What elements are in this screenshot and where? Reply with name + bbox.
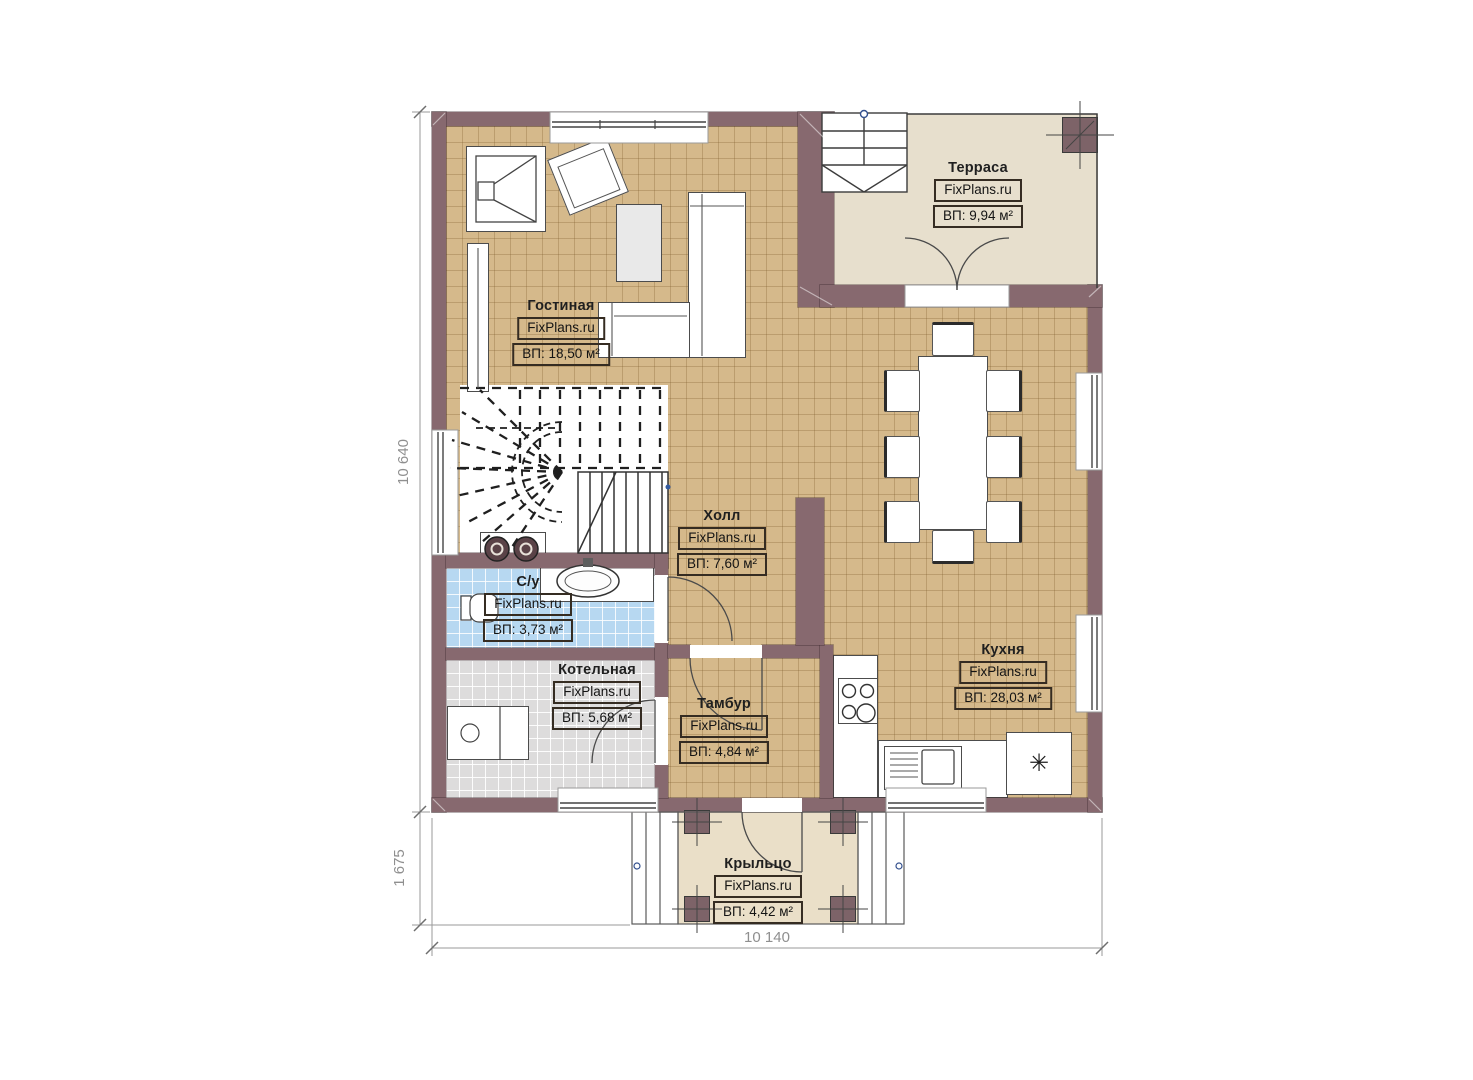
- wall-exterior-bottom: [432, 798, 1102, 812]
- porch-column: [684, 810, 710, 834]
- room-name: Котельная: [558, 662, 636, 678]
- room-label-vestibule: Тамбур FixPlans.ru ВП: 4,84 м²: [679, 696, 769, 764]
- watermark: FixPlans.ru: [680, 715, 768, 738]
- room-area: ВП: 9,94 м²: [933, 205, 1023, 228]
- room-area: ВП: 3,73 м²: [483, 619, 573, 642]
- kitchen-stove: [838, 678, 878, 724]
- dining-chair: [932, 530, 974, 564]
- room-name: Кухня: [981, 642, 1024, 658]
- fridge: ✳: [1006, 732, 1072, 795]
- dining-chair: [884, 501, 920, 543]
- watermark: FixPlans.ru: [553, 681, 641, 704]
- room-label-kitchen: Кухня FixPlans.ru ВП: 28,03 м²: [954, 642, 1052, 710]
- dining-table: [918, 356, 988, 530]
- kitchen-counter-left: [833, 655, 878, 798]
- wall-exterior-top: [432, 112, 834, 126]
- watermark: FixPlans.ru: [714, 875, 802, 898]
- watermark: FixPlans.ru: [517, 317, 605, 340]
- terrace-column: [1062, 117, 1098, 153]
- dining-chair: [986, 501, 1022, 543]
- dimension-left-porch: 1 675: [391, 849, 408, 887]
- watermark: FixPlans.ru: [484, 593, 572, 616]
- room-area: ВП: 5,68 м²: [552, 707, 642, 730]
- room-label-porch: Крыльцо FixPlans.ru ВП: 4,42 м²: [713, 856, 803, 924]
- sofa-vertical: [688, 192, 746, 358]
- boiler-unit: [447, 706, 529, 760]
- wall-hall-left-2: [655, 643, 668, 697]
- room-area: ВП: 4,84 м²: [679, 741, 769, 764]
- dimension-bottom-total: 10 140: [744, 929, 790, 946]
- dining-chair: [986, 370, 1022, 412]
- floor-plan-canvas: ✳: [0, 0, 1473, 1080]
- wall-bathroom-boiler: [446, 648, 658, 660]
- wall-exterior-left: [432, 112, 446, 812]
- room-name: Крыльцо: [724, 856, 791, 872]
- wall-hall-left-3: [655, 765, 668, 798]
- watermark: FixPlans.ru: [959, 661, 1047, 684]
- room-name: Гостиная: [527, 298, 594, 314]
- dining-chair: [884, 436, 920, 478]
- room-label-bathroom: С/у FixPlans.ru ВП: 3,73 м²: [483, 574, 573, 642]
- dining-chair: [884, 370, 920, 412]
- room-area: ВП: 4,42 м²: [713, 901, 803, 924]
- dining-chair: [986, 436, 1022, 478]
- room-name: Терраса: [948, 160, 1008, 176]
- porch-column: [684, 896, 710, 922]
- dimension-left-total: 10 640: [395, 439, 412, 485]
- room-area: ВП: 18,50 м²: [512, 343, 610, 366]
- coffee-table: [616, 204, 662, 282]
- kitchen-sink-unit: [884, 746, 962, 790]
- wall-vestibule-top-1: [668, 645, 690, 658]
- fireplace: [466, 146, 546, 232]
- porch-column: [830, 896, 856, 922]
- stairs-area: [460, 385, 668, 553]
- wall-hall-left-1: [655, 553, 668, 575]
- sofa-chaise: [598, 302, 690, 358]
- wall-terrace-left: [798, 112, 834, 307]
- room-name: Холл: [703, 508, 740, 524]
- fridge-icon: ✳: [1029, 749, 1049, 778]
- porch-column: [830, 810, 856, 834]
- room-label-boiler: Котельная FixPlans.ru ВП: 5,68 м²: [552, 662, 642, 730]
- watermark: FixPlans.ru: [678, 527, 766, 550]
- wall-stairs-bathroom: [446, 553, 668, 568]
- wall-exterior-right: [1088, 285, 1102, 812]
- room-label-terrace: Терраса FixPlans.ru ВП: 9,94 м²: [933, 160, 1023, 228]
- tv-console: [467, 243, 489, 392]
- room-label-hall: Холл FixPlans.ru ВП: 7,60 м²: [677, 508, 767, 576]
- room-name: Тамбур: [697, 696, 751, 712]
- wall-hall-kitchen-stub: [796, 498, 824, 645]
- wall-vestibule-top-2: [762, 645, 820, 658]
- room-area: ВП: 28,03 м²: [954, 687, 1052, 710]
- room-name: С/у: [516, 574, 539, 590]
- room-area: ВП: 7,60 м²: [677, 553, 767, 576]
- room-label-living: Гостиная FixPlans.ru ВП: 18,50 м²: [512, 298, 610, 366]
- wall-terrace-bottom: [820, 285, 1102, 307]
- wall-vestibule-right: [820, 645, 833, 798]
- dining-chair: [932, 322, 974, 356]
- watermark: FixPlans.ru: [934, 179, 1022, 202]
